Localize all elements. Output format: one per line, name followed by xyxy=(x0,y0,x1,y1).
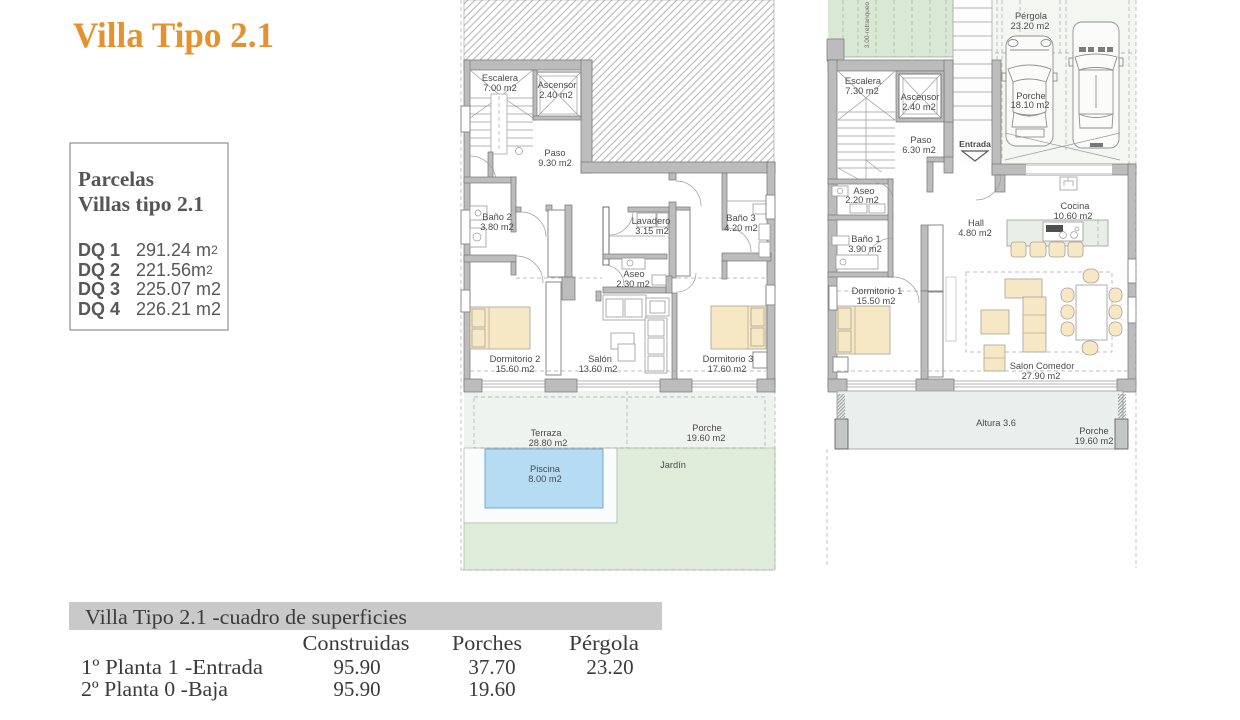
svg-text:15.60 m2: 15.60 m2 xyxy=(496,364,535,374)
svg-text:7.00 m2: 7.00 m2 xyxy=(483,83,517,93)
svg-text:10.60 m2: 10.60 m2 xyxy=(1054,211,1093,221)
svg-text:27.90 m2: 27.90 m2 xyxy=(1022,371,1061,381)
svg-text:2.20 m2: 2.20 m2 xyxy=(845,195,879,205)
svg-text:95.90: 95.90 xyxy=(333,655,380,679)
svg-text:Villas tipo 2.1: Villas tipo 2.1 xyxy=(78,192,204,216)
svg-text:Villa Tipo 2.1: Villa Tipo 2.1 xyxy=(73,15,274,55)
svg-text:Altura 3.6: Altura 3.6 xyxy=(976,418,1016,428)
svg-text:Jardín: Jardín xyxy=(660,460,686,470)
svg-text:Ascensor: Ascensor xyxy=(901,92,940,102)
svg-text:3.00-retranqueo: 3.00-retranqueo xyxy=(864,1,871,48)
svg-text:Dormitorio 3: Dormitorio 3 xyxy=(703,354,754,364)
svg-text:Construidas: Construidas xyxy=(303,631,410,655)
svg-text:Terraza: Terraza xyxy=(531,428,563,438)
svg-text:Pérgola: Pérgola xyxy=(569,631,640,655)
svg-text:Porche: Porche xyxy=(692,423,721,433)
svg-text:7.30 m2: 7.30 m2 xyxy=(845,86,879,96)
svg-text:37.70: 37.70 xyxy=(468,655,515,679)
svg-text:DQ 1: DQ 1 xyxy=(78,240,120,260)
svg-text:Entrada: Entrada xyxy=(959,139,991,149)
svg-text:DQ 2: DQ 2 xyxy=(78,260,120,280)
svg-text:Ascensor: Ascensor xyxy=(538,80,577,90)
svg-text:Lavadero: Lavadero xyxy=(632,216,671,226)
svg-text:Baño 3: Baño 3 xyxy=(726,213,755,223)
svg-text:95.90: 95.90 xyxy=(333,677,380,701)
svg-text:1º Planta 1 -Entrada: 1º Planta 1 -Entrada xyxy=(81,655,264,679)
svg-text:13.60 m2: 13.60 m2 xyxy=(579,364,618,374)
svg-text:Parcelas: Parcelas xyxy=(78,167,154,191)
svg-text:Piscina: Piscina xyxy=(530,464,561,474)
svg-text:19.60: 19.60 xyxy=(468,677,515,701)
svg-text:2.40 m2: 2.40 m2 xyxy=(539,90,573,100)
svg-text:225.07 m2: 225.07 m2 xyxy=(136,279,221,299)
svg-text:Pérgola: Pérgola xyxy=(1015,11,1048,21)
svg-text:18.10 m2: 18.10 m2 xyxy=(1011,100,1050,110)
svg-text:Hall: Hall xyxy=(968,218,984,228)
svg-text:DQ 4: DQ 4 xyxy=(78,299,120,319)
svg-text:3.90 m2: 3.90 m2 xyxy=(848,244,882,254)
svg-text:Escalera: Escalera xyxy=(482,73,519,83)
svg-text:Baño 2: Baño 2 xyxy=(482,212,511,222)
svg-text:Porche: Porche xyxy=(1079,426,1108,436)
svg-text:9.30 m2: 9.30 m2 xyxy=(538,158,572,168)
svg-text:Villa Tipo 2.1 -cuadro de supe: Villa Tipo 2.1 -cuadro de superficies xyxy=(85,605,407,629)
svg-text:226.21 m2: 226.21 m2 xyxy=(136,299,221,319)
svg-text:Cocina: Cocina xyxy=(1061,201,1091,211)
svg-text:2.30 m2: 2.30 m2 xyxy=(616,279,650,289)
svg-text:Paso: Paso xyxy=(544,148,565,158)
svg-text:15.50 m2: 15.50 m2 xyxy=(857,296,896,306)
svg-text:3.15 m2: 3.15 m2 xyxy=(635,226,669,236)
svg-text:Escalera: Escalera xyxy=(845,76,882,86)
svg-text:291.24 m2: 291.24 m2 xyxy=(136,240,218,260)
svg-text:17.60 m2: 17.60 m2 xyxy=(708,364,747,374)
svg-text:19.60 m2: 19.60 m2 xyxy=(1075,436,1114,446)
svg-text:DQ 3: DQ 3 xyxy=(78,279,120,299)
svg-text:2º Planta 0 -Baja: 2º Planta 0 -Baja xyxy=(81,677,229,701)
svg-text:23.20: 23.20 xyxy=(586,655,633,679)
svg-text:4.20 m2: 4.20 m2 xyxy=(724,223,758,233)
svg-text:Baño 1: Baño 1 xyxy=(851,234,880,244)
svg-text:Dormitorio 2: Dormitorio 2 xyxy=(490,354,541,364)
svg-text:19.60 m2: 19.60 m2 xyxy=(687,433,726,443)
svg-text:Dormitorio 1: Dormitorio 1 xyxy=(852,286,903,296)
svg-text:221.56m2: 221.56m2 xyxy=(136,260,213,280)
svg-text:6.30 m2: 6.30 m2 xyxy=(902,145,936,155)
svg-text:23.20 m2: 23.20 m2 xyxy=(1011,21,1050,31)
svg-text:2.40 m2: 2.40 m2 xyxy=(902,102,936,112)
svg-text:Aseo: Aseo xyxy=(623,269,644,279)
svg-text:Salon Comedor: Salon Comedor xyxy=(1010,361,1075,371)
svg-text:Porches: Porches xyxy=(452,631,522,655)
svg-text:3.80 m2: 3.80 m2 xyxy=(480,222,514,232)
svg-text:28.80 m2: 28.80 m2 xyxy=(529,438,568,448)
svg-text:Paso: Paso xyxy=(910,135,931,145)
svg-text:8.00 m2: 8.00 m2 xyxy=(528,474,562,484)
svg-text:Salón: Salón xyxy=(588,354,612,364)
svg-text:4.80 m2: 4.80 m2 xyxy=(958,228,992,238)
